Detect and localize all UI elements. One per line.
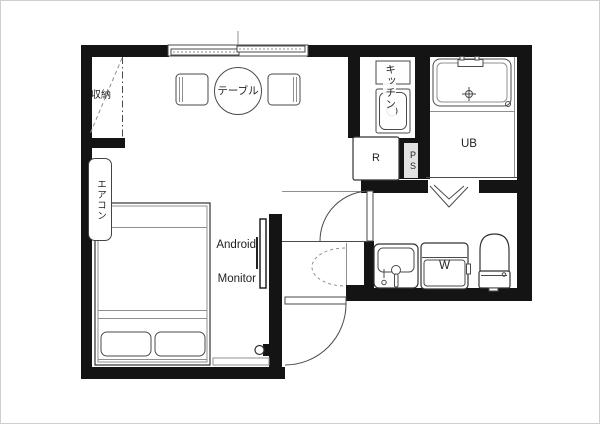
entry-door-arc [285,304,346,365]
wall-monitor [257,219,266,288]
bathtub-handle-right [475,57,479,61]
entry-door [255,297,346,365]
storage-label: 収納 [91,90,125,103]
monitor-panel [260,219,266,288]
bed [95,203,210,365]
entry-door-leaf [285,297,346,304]
wall-storage-stub [81,138,125,148]
washroom-door [312,191,373,286]
floorplan-canvas: 収納 テーブル キッチン R PS UB エアコン Android Monito… [0,0,600,424]
chair-left [176,74,208,105]
bathtub [433,57,511,107]
bifold-inner-line [434,185,464,199]
washroom-door-arc [320,191,370,241]
bathtub-handle-left [460,57,464,61]
wall-kitchen-ub-divider [415,56,430,138]
wall-bottom-bedroom [81,367,285,379]
entry-door-knob [255,346,264,355]
bifold-outer-line [430,186,468,207]
wall-washroom-west [364,241,374,289]
monitor-label-line1: Android [216,239,256,251]
vanity-sink [374,244,418,288]
toilet-base-tab [489,288,498,291]
washroom-door-dashed-arc [312,248,345,286]
wall-washroom-north-right [479,180,517,193]
aircon-label: エアコン [88,158,112,241]
bathtub-faucet-deck [458,60,483,67]
sliding-window [168,31,308,56]
wall-right [517,45,532,301]
chair-right [268,74,300,105]
refrigerator-label: R [353,137,399,180]
south-ledge [213,358,269,365]
wall-top-left [81,45,169,57]
wall-bedroom-east [269,214,282,379]
unit-bath-bifold-door [430,185,468,207]
monitor-label-line2: Monitor [218,273,256,285]
wall-kitchen-west [348,56,360,138]
bed-pillow-right [155,332,205,356]
pipe-space-label: PS [404,143,418,178]
bed-pillow-left [101,332,151,356]
washroom-door-leaf [367,191,373,241]
table-label: テーブル [208,85,268,98]
toilet-bowl [480,234,509,272]
monitor-label: Android Monitor [194,237,256,288]
vanity-faucet-head [392,266,401,275]
vanity-faucet-stem [395,274,399,287]
wall-top-right [307,45,532,57]
unit-bath-label: UB [449,137,489,151]
toilet [479,234,510,291]
kitchen-label: キッチン [383,64,396,128]
washer-label: W [421,244,468,288]
